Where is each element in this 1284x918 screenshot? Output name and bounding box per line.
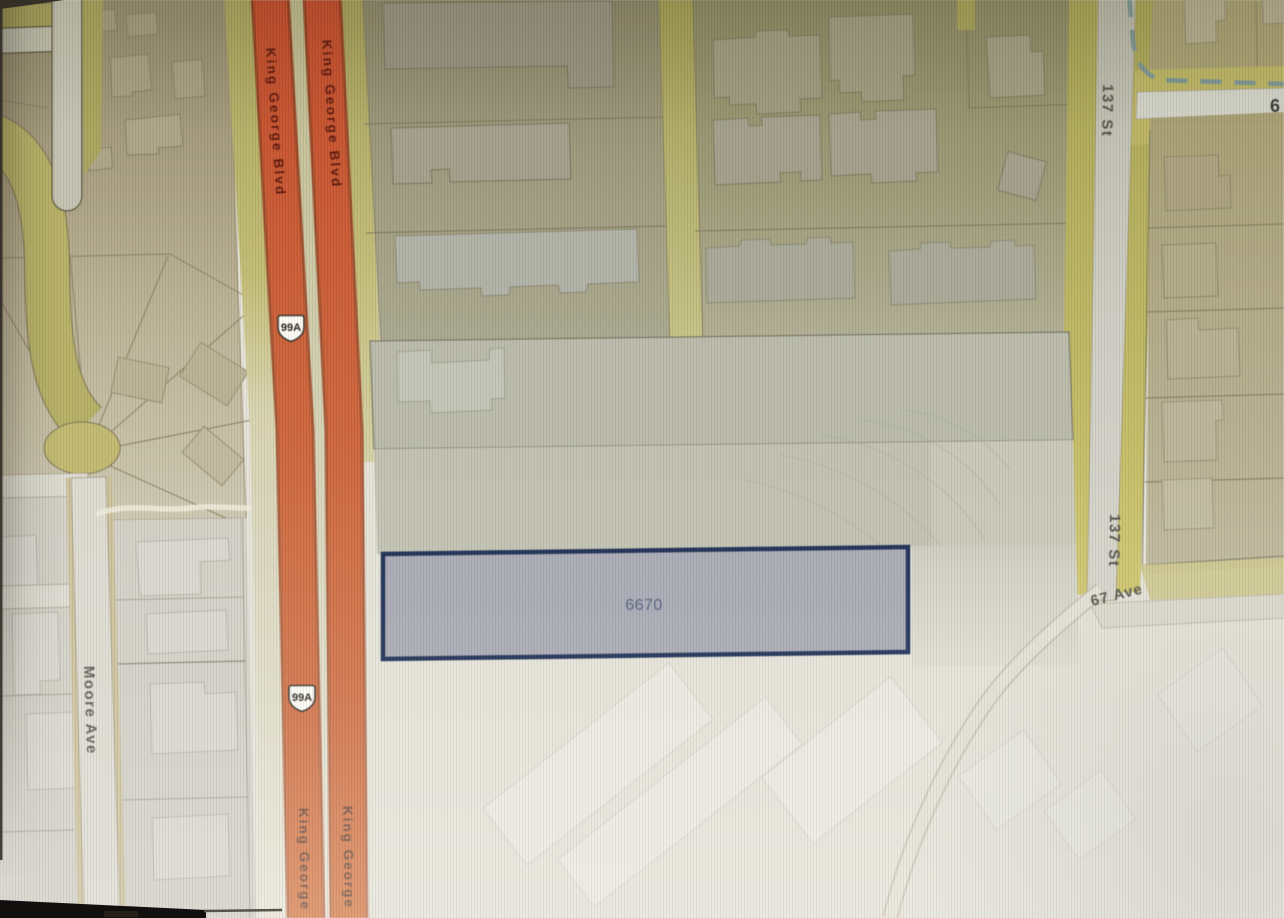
svg-text:Moore Ave: Moore Ave	[80, 666, 100, 756]
svg-text:137 St: 137 St	[1105, 514, 1123, 567]
svg-text:99A: 99A	[281, 322, 301, 334]
svg-text:137 St: 137 St	[1098, 84, 1116, 137]
svg-text:King George: King George	[296, 808, 313, 911]
svg-text:6670: 6670	[625, 597, 663, 614]
svg-text:King George: King George	[340, 806, 357, 909]
svg-text:99A: 99A	[292, 692, 312, 704]
